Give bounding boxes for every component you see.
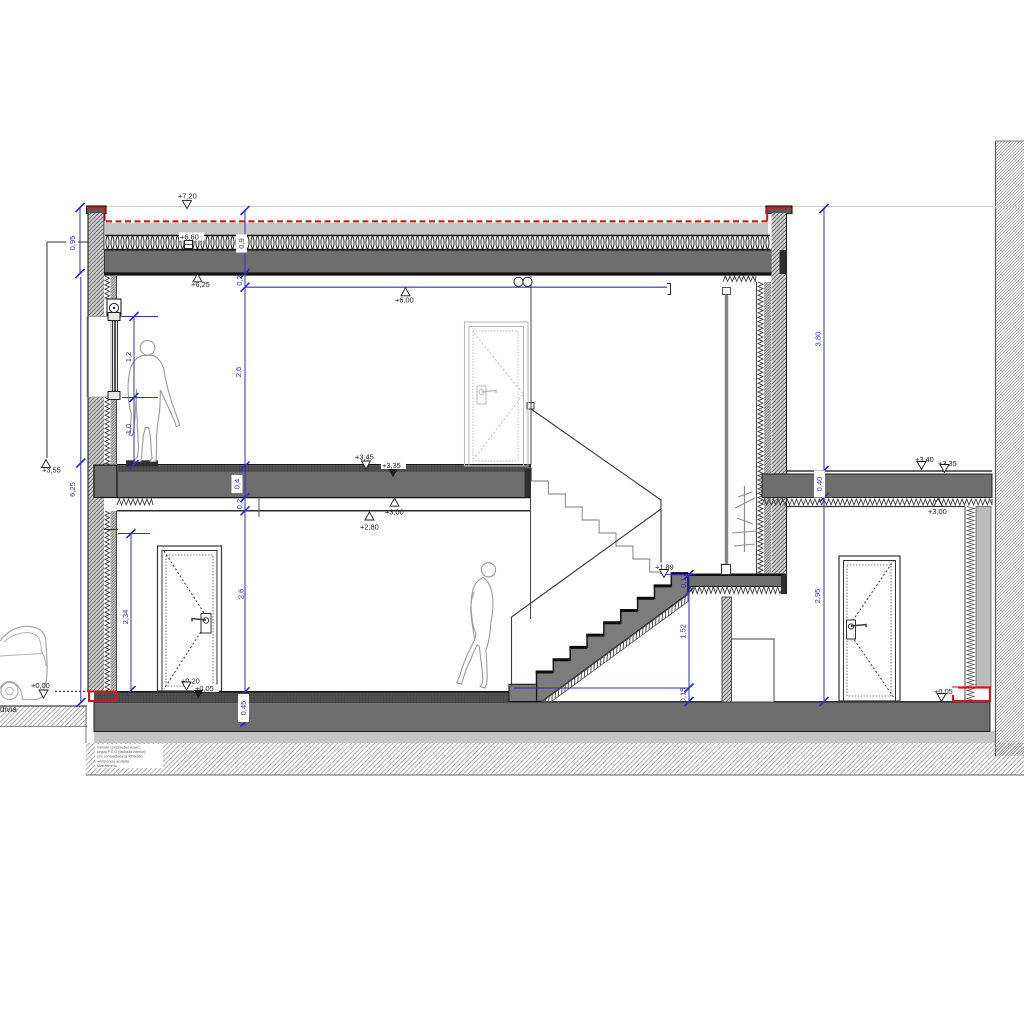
svg-text:6,25: 6,25 [68,482,77,497]
svg-text:2,95: 2,95 [813,589,822,604]
svg-text:+3,00: +3,00 [385,508,404,517]
svg-text:2,6: 2,6 [237,589,246,600]
svg-text:0,9: 0,9 [237,238,246,249]
svg-text:1,52: 1,52 [679,624,688,639]
svg-text:+7,20: +7,20 [178,192,197,201]
svg-text:0,15: 0,15 [679,688,688,703]
svg-text:nivel terreno: nivel terreno [97,764,117,768]
svg-text:0,2: 0,2 [235,499,244,510]
svg-text:según P.G.O (fachada interior): según P.G.O (fachada interior) [97,750,145,754]
svg-text:2,34: 2,34 [121,610,130,625]
svg-text:2,6: 2,6 [234,367,243,378]
svg-text:+0,00: +0,00 [31,681,50,690]
svg-text:3,80: 3,80 [814,332,823,347]
svg-text:0,45: 0,45 [239,701,248,716]
svg-text:1,2: 1,2 [124,352,133,363]
svg-text:+referencia acotada: +referencia acotada [97,759,129,763]
svg-text:0,40: 0,40 [815,477,824,492]
svg-text:0,17: 0,17 [679,573,688,588]
svg-text:+6,00: +6,00 [395,296,414,305]
svg-text:0,4: 0,4 [233,479,242,490]
svg-text:0,2: 0,2 [235,275,244,286]
svg-text:1,0: 1,0 [124,424,133,435]
svg-text:cm. compactada al 95%(SR): cm. compactada al 95%(SR) [97,755,143,759]
svg-text:+3,45: +3,45 [355,453,374,462]
svg-text:+3,35: +3,35 [382,461,401,470]
svg-text:divia: divia [0,705,17,714]
svg-text:método constructivo espec.: método constructivo espec. [97,746,141,750]
svg-text:+3,00: +3,00 [928,507,947,516]
svg-text:0,95: 0,95 [68,236,77,251]
svg-text:+2,80: +2,80 [360,523,379,532]
